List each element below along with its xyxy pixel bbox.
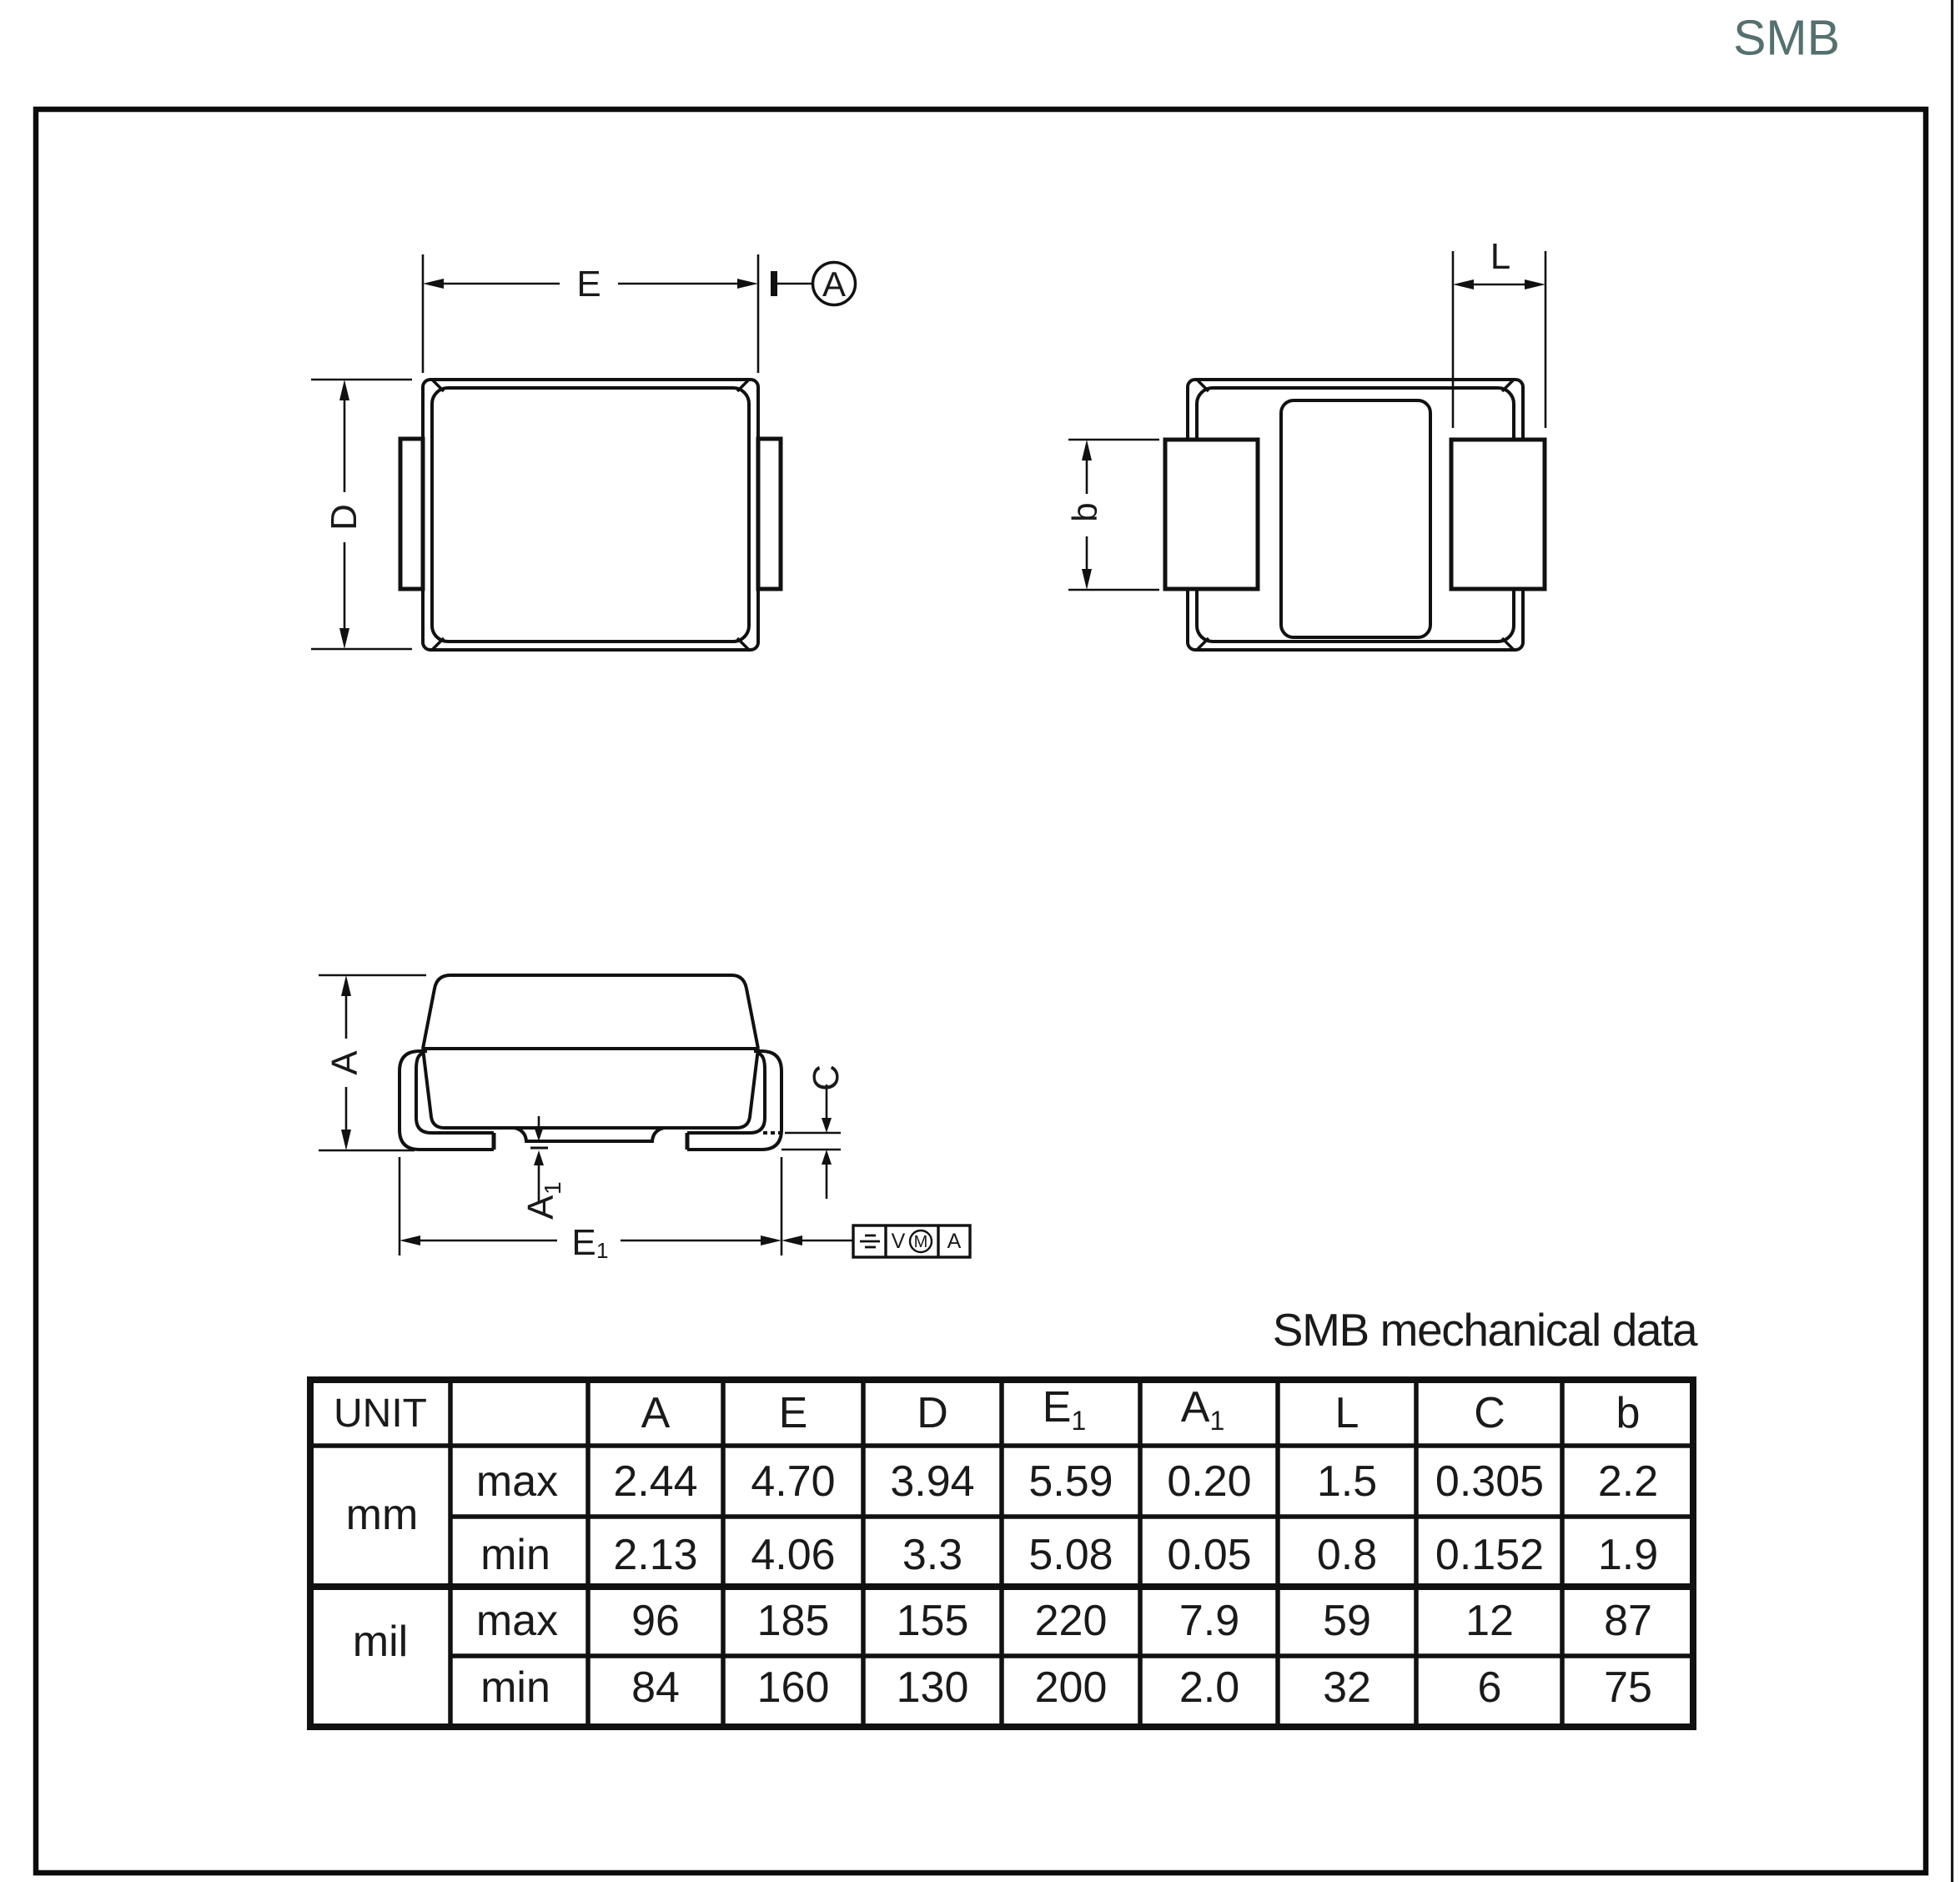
svg-text:4.70: 4.70: [751, 1457, 835, 1506]
svg-text:L: L: [1335, 1389, 1359, 1437]
svg-text:200: 200: [1035, 1663, 1108, 1712]
svg-text:96: 96: [631, 1597, 680, 1645]
svg-text:2.13: 2.13: [613, 1531, 697, 1579]
svg-text:1: 1: [540, 1181, 565, 1195]
svg-text:12: 12: [1465, 1597, 1514, 1645]
svg-text:min: min: [480, 1663, 550, 1712]
svg-text:3.94: 3.94: [890, 1457, 974, 1506]
svg-text:0.305: 0.305: [1435, 1457, 1544, 1506]
svg-text:A: A: [324, 1050, 365, 1075]
svg-text:b: b: [1065, 502, 1104, 521]
svg-text:130: 130: [897, 1663, 969, 1712]
svg-text:mm: mm: [346, 1491, 419, 1539]
svg-text:D: D: [324, 504, 364, 531]
svg-text:4.06: 4.06: [751, 1531, 835, 1579]
svg-text:max: max: [476, 1457, 558, 1506]
svg-text:UNIT: UNIT: [334, 1391, 427, 1436]
svg-text:1: 1: [596, 1238, 608, 1263]
svg-text:160: 160: [757, 1663, 830, 1712]
svg-text:max: max: [476, 1597, 558, 1645]
svg-text:2.2: 2.2: [1598, 1457, 1658, 1506]
svg-text:A: A: [947, 1230, 962, 1253]
svg-text:L: L: [1490, 236, 1510, 277]
svg-text:b: b: [1616, 1389, 1641, 1437]
svg-text:75: 75: [1604, 1663, 1652, 1712]
svg-text:SMB mechanical data: SMB mechanical data: [1273, 1304, 1698, 1356]
svg-text:2.0: 2.0: [1179, 1663, 1239, 1712]
svg-text:1.9: 1.9: [1598, 1531, 1658, 1579]
svg-text:A: A: [822, 264, 846, 304]
svg-text:A: A: [641, 1389, 671, 1437]
svg-text:SMB: SMB: [1733, 11, 1840, 66]
svg-text:7.9: 7.9: [1179, 1597, 1239, 1645]
svg-text:D: D: [917, 1389, 948, 1437]
svg-text:V: V: [892, 1230, 906, 1253]
svg-text:1.5: 1.5: [1317, 1457, 1377, 1506]
svg-text:mil: mil: [353, 1618, 408, 1666]
svg-text:M: M: [914, 1233, 928, 1251]
svg-text:5.08: 5.08: [1028, 1531, 1113, 1579]
svg-text:0.8: 0.8: [1317, 1531, 1377, 1579]
svg-text:220: 220: [1035, 1597, 1108, 1645]
svg-text:C: C: [1474, 1389, 1505, 1437]
svg-text:87: 87: [1604, 1597, 1652, 1645]
svg-text:E: E: [779, 1389, 808, 1437]
svg-text:E: E: [576, 264, 601, 304]
svg-text:min: min: [480, 1531, 550, 1579]
svg-text:59: 59: [1323, 1597, 1371, 1645]
svg-text:155: 155: [897, 1597, 969, 1645]
svg-text:3.3: 3.3: [902, 1531, 962, 1579]
svg-text:0.152: 0.152: [1435, 1531, 1544, 1579]
svg-text:0.20: 0.20: [1167, 1457, 1251, 1506]
svg-text:185: 185: [757, 1597, 830, 1645]
svg-text:A: A: [520, 1195, 561, 1220]
svg-text:5.59: 5.59: [1028, 1457, 1113, 1506]
svg-text:C: C: [806, 1064, 847, 1091]
svg-text:84: 84: [631, 1663, 680, 1712]
svg-text:0.05: 0.05: [1167, 1531, 1251, 1579]
svg-text:E: E: [571, 1222, 596, 1263]
svg-text:32: 32: [1323, 1663, 1371, 1712]
svg-text:2.44: 2.44: [613, 1457, 697, 1506]
svg-text:6: 6: [1478, 1663, 1502, 1712]
